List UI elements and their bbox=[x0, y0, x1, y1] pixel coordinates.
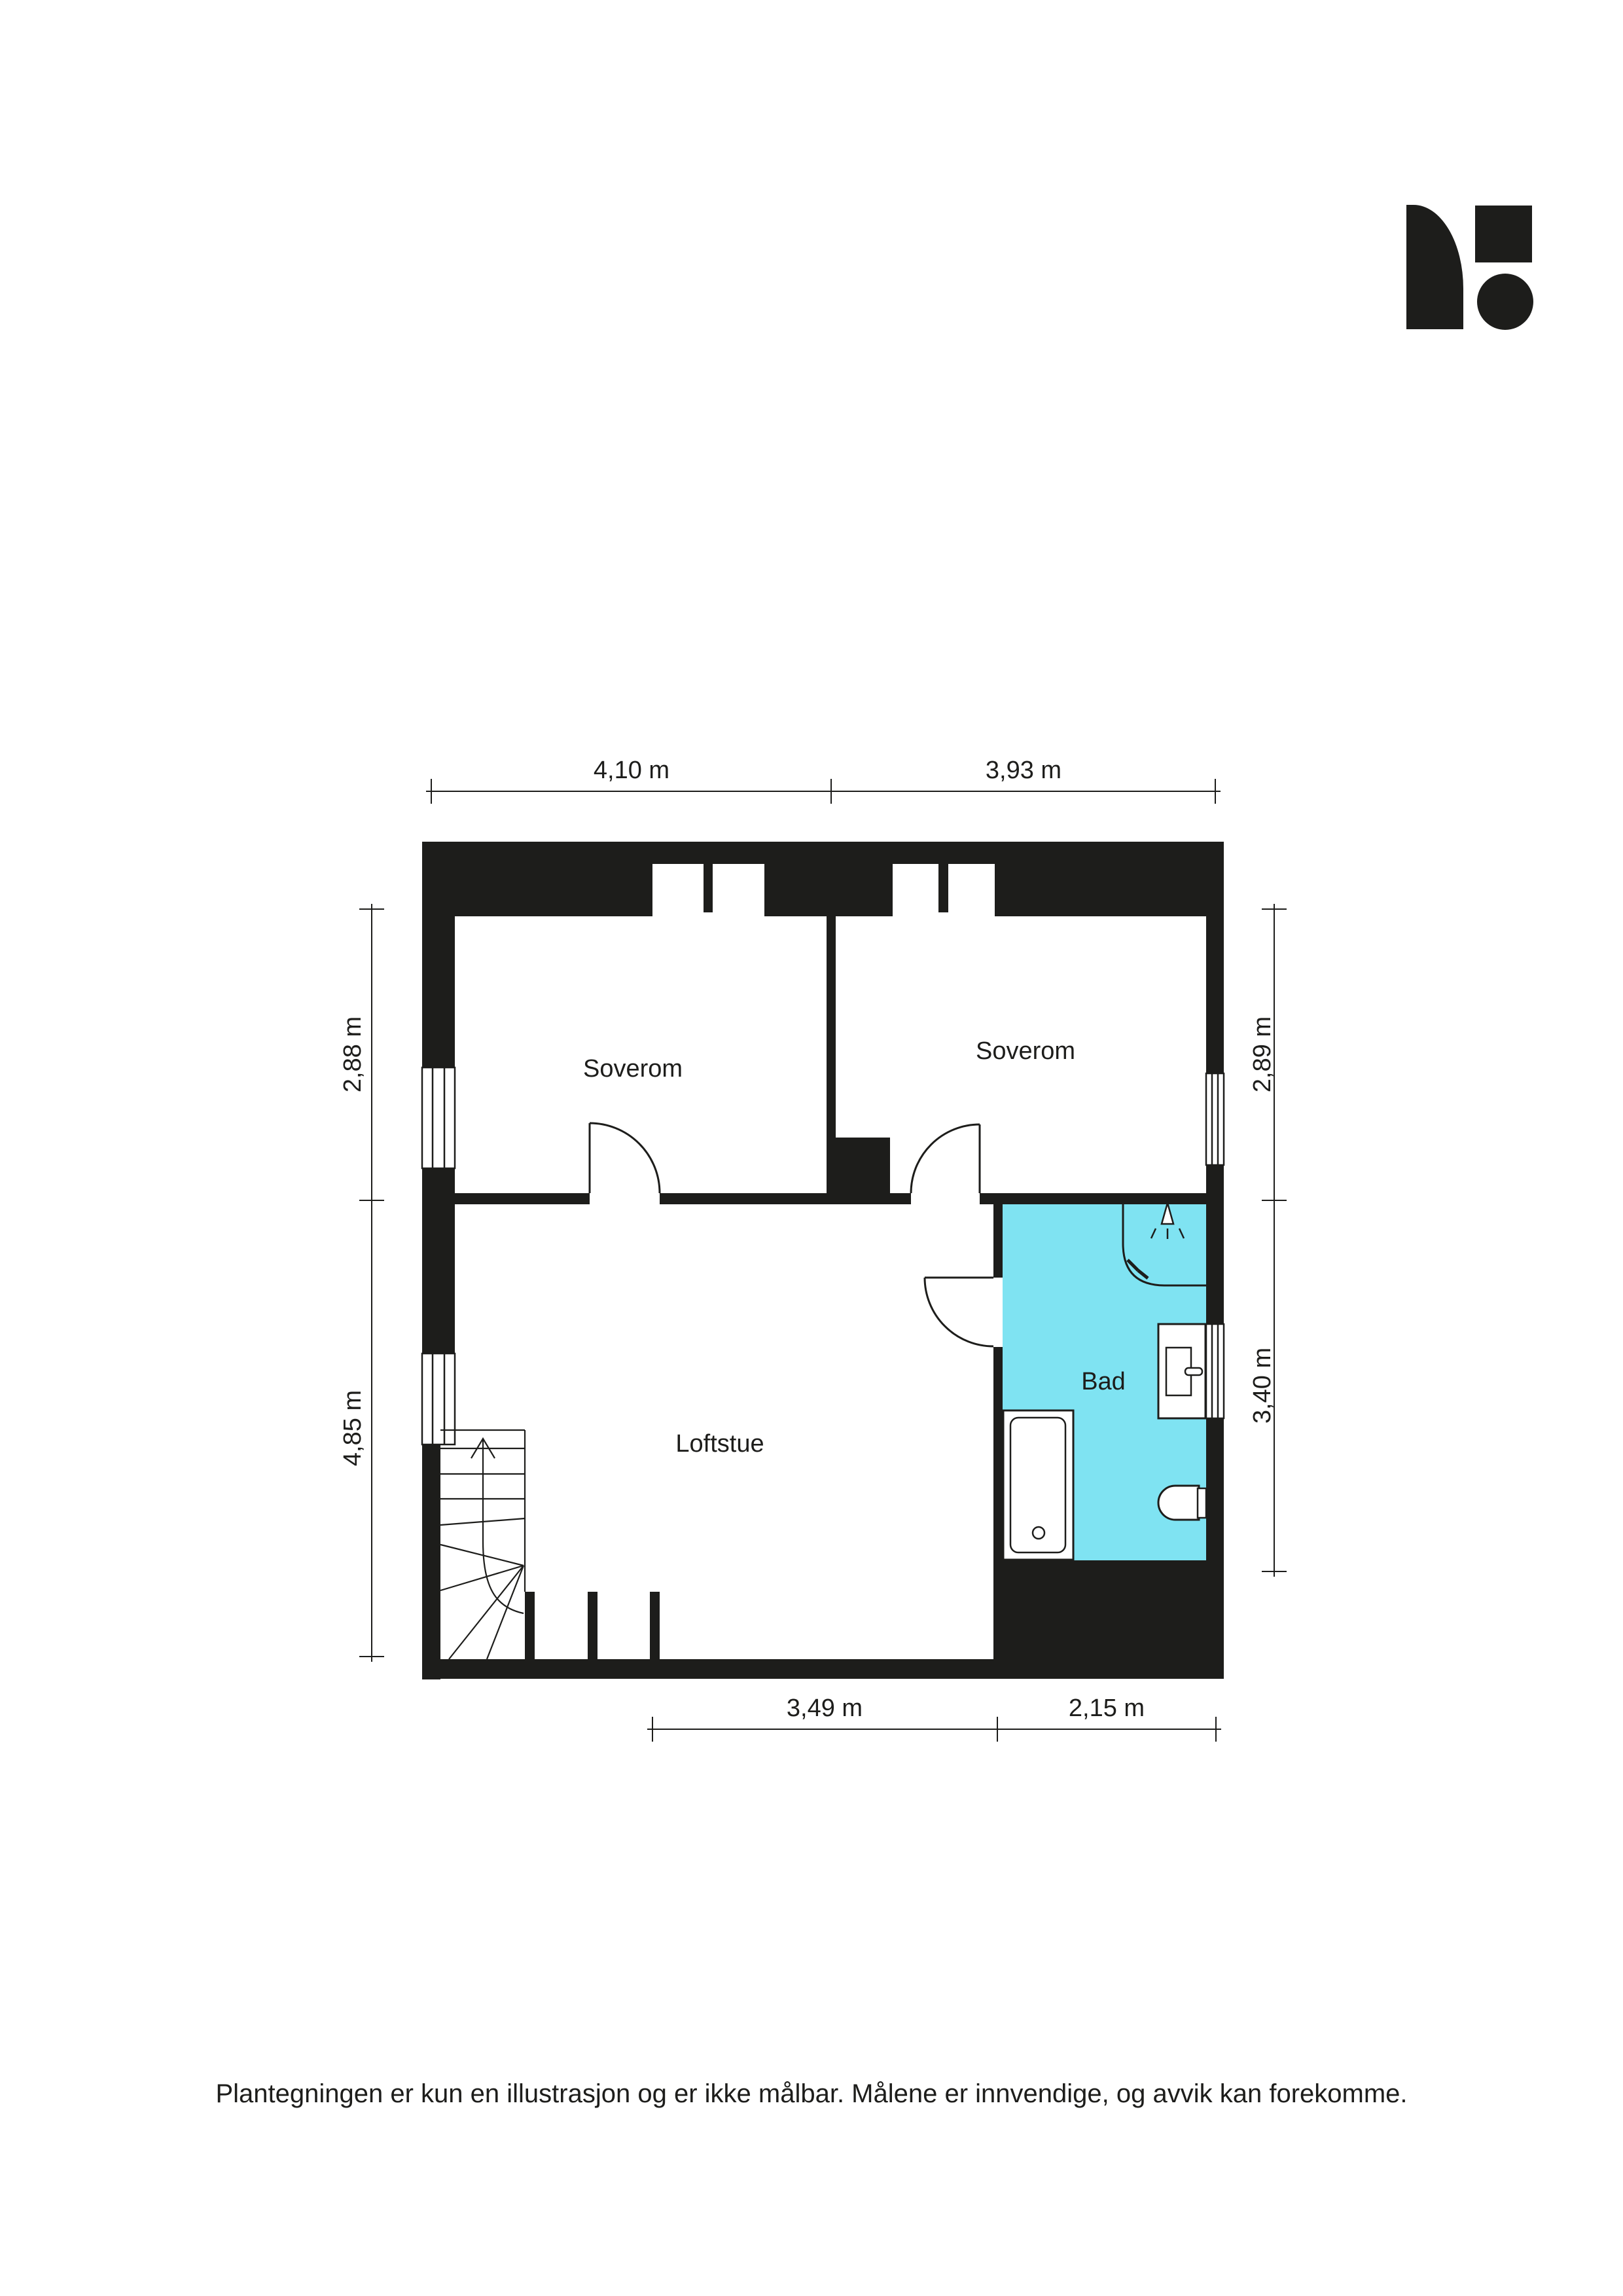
dim-label-top-right: 3,93 m bbox=[986, 757, 1061, 784]
dimension-line-right bbox=[1262, 904, 1287, 1577]
stub-wall-2 bbox=[588, 1592, 597, 1659]
room-label-soverom-2: Soverom bbox=[976, 1037, 1075, 1065]
left-exterior-wall-lower bbox=[422, 1444, 440, 1679]
staircase bbox=[440, 1430, 525, 1659]
dim-label-right-upper: 2,89 m bbox=[1249, 1016, 1276, 1092]
logo-rounded-shape bbox=[1406, 205, 1463, 329]
dimension-line-top bbox=[426, 779, 1221, 804]
top-exterior-wall bbox=[422, 842, 1224, 916]
toilet bbox=[1158, 1486, 1206, 1520]
room-label-loftstue: Loftstue bbox=[675, 1430, 764, 1458]
logo-circle-shape bbox=[1477, 274, 1533, 330]
top-wall-recess-left-divider bbox=[704, 864, 713, 912]
dim-label-left-upper: 2,88 m bbox=[339, 1016, 366, 1092]
top-wall-recess-right-divider bbox=[938, 864, 948, 912]
dim-label-right-lower: 3,40 m bbox=[1249, 1348, 1276, 1424]
dim-label-left-lower: 4,85 m bbox=[339, 1390, 366, 1466]
chimney-block bbox=[827, 1138, 890, 1204]
floorplan-drawing: 4,10 m 3,93 m 2,88 m 4,85 m 2,89 m 3,40 … bbox=[0, 0, 1623, 2296]
dim-label-top-left: 4,10 m bbox=[594, 757, 669, 784]
floorplan-page: 4,10 m 3,93 m 2,88 m 4,85 m 2,89 m 3,40 … bbox=[0, 0, 1623, 2296]
bathroom-wall-upper bbox=[993, 1204, 1003, 1278]
corridor-wall-seg2 bbox=[660, 1193, 827, 1204]
door-bedroom2 bbox=[911, 1124, 980, 1193]
bedroom-divider-wall bbox=[827, 916, 836, 1138]
stub-wall-1 bbox=[525, 1592, 535, 1659]
right-exterior-wall bbox=[1206, 842, 1224, 1560]
stub-wall-3 bbox=[650, 1592, 660, 1659]
door-bedroom1 bbox=[590, 1123, 660, 1193]
logo-square-shape bbox=[1475, 206, 1532, 262]
disclaimer-text: Plantegningen er kun en illustrasjon og … bbox=[215, 2079, 1407, 2108]
corridor-wall-seg4 bbox=[980, 1193, 1206, 1204]
dim-label-bottom-left: 3,49 m bbox=[787, 1695, 863, 1722]
corridor-wall-seg1 bbox=[455, 1193, 590, 1204]
bathtub bbox=[1003, 1410, 1073, 1560]
bathroom-wall-lower bbox=[993, 1347, 1003, 1560]
brand-logo bbox=[1406, 205, 1533, 330]
window-bathroom bbox=[1206, 1324, 1224, 1418]
door-bathroom bbox=[925, 1278, 993, 1346]
room-label-soverom-1: Soverom bbox=[583, 1055, 683, 1083]
room-label-bad: Bad bbox=[1081, 1368, 1126, 1395]
window-bedroom2 bbox=[1206, 1073, 1224, 1165]
dim-label-bottom-right: 2,15 m bbox=[1069, 1695, 1145, 1722]
vanity-sink bbox=[1158, 1324, 1205, 1418]
bottom-right-wall-block bbox=[993, 1560, 1224, 1679]
window-bedroom1 bbox=[422, 1067, 455, 1168]
corridor-wall-seg3 bbox=[890, 1193, 911, 1204]
window-loftstue bbox=[422, 1354, 455, 1444]
bottom-exterior-wall bbox=[422, 1659, 993, 1679]
